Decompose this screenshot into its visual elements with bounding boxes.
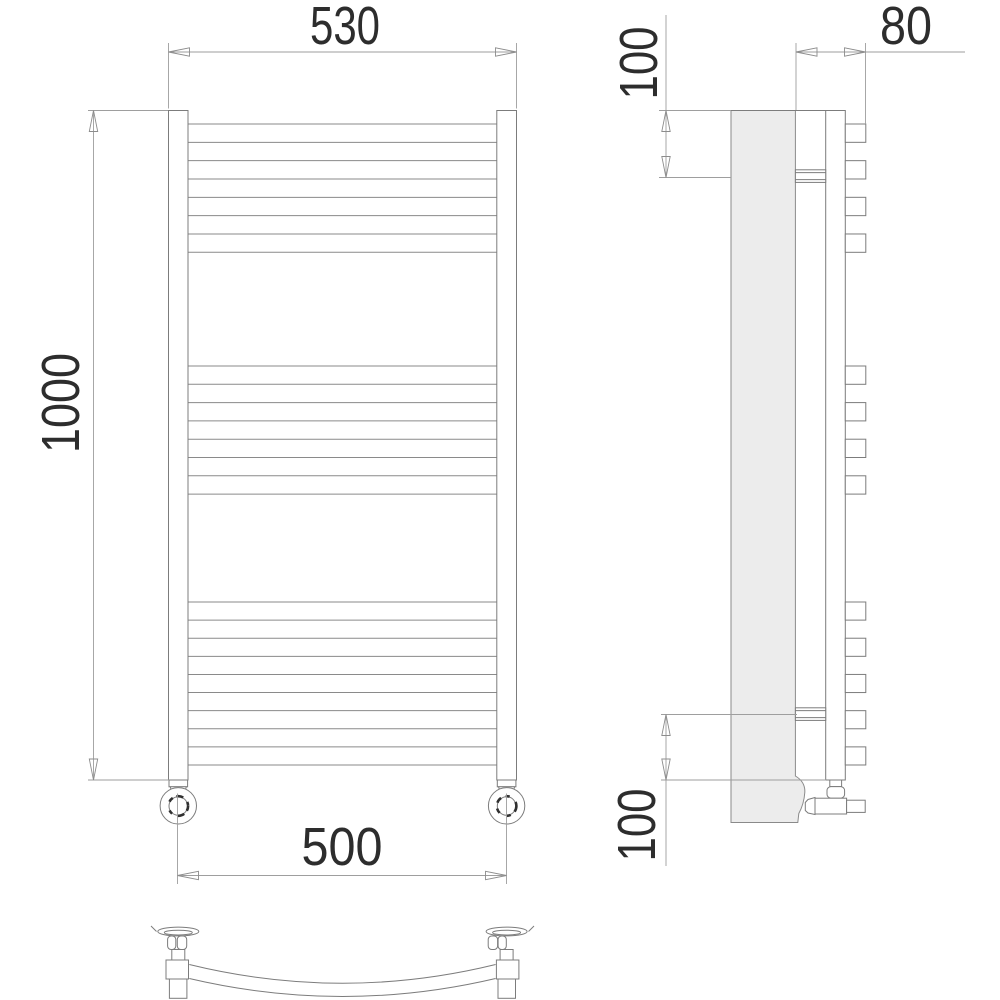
dim-100-bottom-label: 100 bbox=[607, 789, 667, 862]
dim-80-label: 80 bbox=[880, 0, 932, 56]
upper-bracket bbox=[795, 170, 825, 183]
rung-end-tab bbox=[845, 403, 866, 421]
side-view: 80 100 100 bbox=[607, 0, 965, 866]
side-panel bbox=[731, 111, 805, 823]
rung-end-tab bbox=[845, 602, 866, 620]
technical-drawing-canvas: 530 1000 500 bbox=[0, 0, 1000, 1000]
dim-500-label: 500 bbox=[302, 817, 383, 877]
dim-1000-label: 1000 bbox=[31, 353, 91, 453]
right-valve-plan bbox=[486, 926, 534, 998]
dim-100-top-label: 100 bbox=[609, 27, 669, 100]
rung-end-tab bbox=[845, 747, 866, 765]
top-view bbox=[151, 926, 534, 998]
rung-end-tab bbox=[845, 439, 866, 457]
side-valve bbox=[805, 780, 865, 815]
rung-end-tab bbox=[845, 366, 866, 384]
dim-530: 530 bbox=[169, 0, 517, 109]
curved-tube-outer bbox=[189, 965, 495, 984]
radiator-drawing: 530 1000 500 bbox=[0, 0, 1000, 1000]
curved-tube-inner bbox=[189, 979, 495, 997]
rung-end-tabs bbox=[845, 124, 866, 765]
rung-end-tab bbox=[845, 476, 866, 494]
rung-end-tab bbox=[845, 124, 866, 142]
left-valve-front bbox=[160, 780, 196, 824]
dim-100-top: 100 bbox=[609, 15, 731, 178]
left-valve-plan bbox=[151, 926, 199, 998]
rung-end-tab bbox=[845, 197, 866, 215]
lower-bracket bbox=[795, 708, 825, 721]
right-post bbox=[497, 111, 517, 781]
rung-end-tab bbox=[845, 161, 866, 179]
rung-lines bbox=[188, 124, 497, 765]
rung-end-tab bbox=[845, 234, 866, 252]
dim-530-label: 530 bbox=[310, 0, 380, 56]
dim-1000: 1000 bbox=[31, 111, 169, 781]
rung-end-tab bbox=[845, 711, 866, 729]
side-post bbox=[826, 111, 846, 781]
dim-500: 500 bbox=[178, 794, 507, 885]
rung-end-tab bbox=[845, 638, 866, 656]
rung-end-tab bbox=[845, 674, 866, 692]
left-post bbox=[169, 111, 189, 781]
dim-80: 80 bbox=[796, 0, 965, 124]
front-view: 530 1000 500 bbox=[31, 0, 525, 884]
